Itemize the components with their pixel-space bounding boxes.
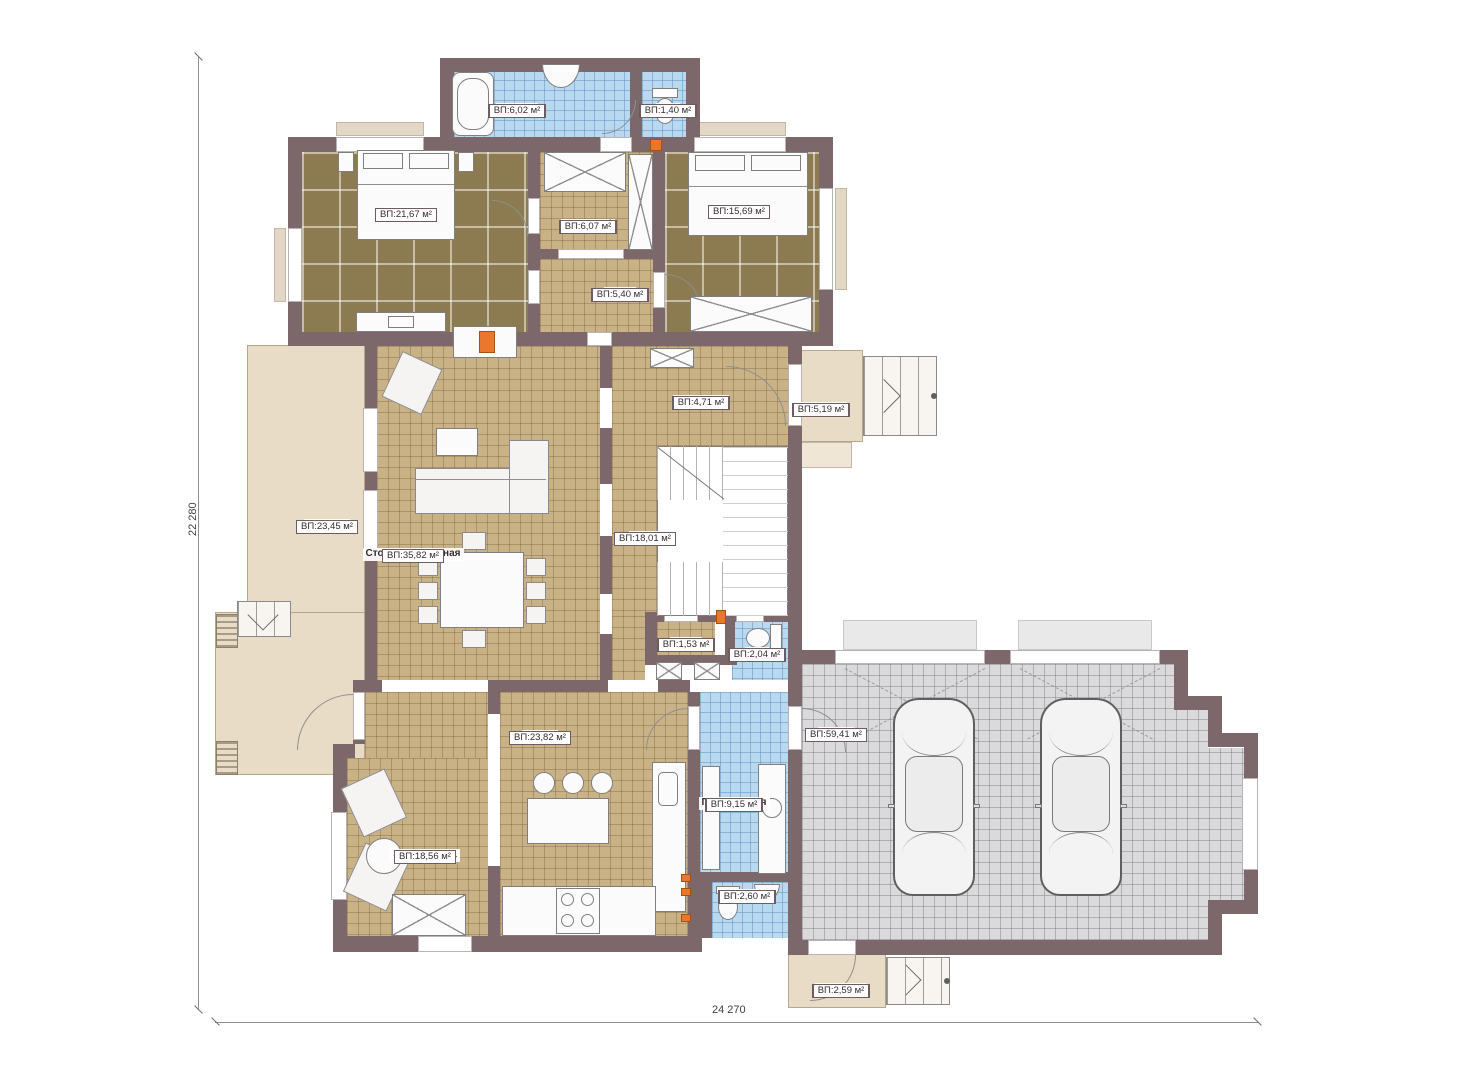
chair-symbol (526, 582, 546, 600)
room-area: ВП:5,19 м² (793, 403, 850, 417)
toilet-bowl (746, 628, 770, 648)
room-area: ВП:21,67 м² (375, 208, 437, 222)
wall-segment (333, 936, 702, 952)
room-area: ВП:6,07 м² (560, 220, 617, 234)
wardrobe-symbol (656, 662, 682, 680)
window (1242, 778, 1258, 870)
window-sill (835, 188, 847, 290)
car-rear-window (1049, 832, 1113, 854)
terrace-floor (247, 345, 365, 615)
room-area: ВП:4,71 м² (673, 396, 730, 410)
wall-segment (365, 680, 382, 692)
terrace-pillar (216, 741, 238, 775)
garage-door-opening (835, 650, 985, 664)
lounge-corridor-floor (365, 692, 488, 758)
blanket-line (358, 184, 454, 185)
door-opening (653, 272, 665, 308)
room-area: ВП:59,41 м² (805, 728, 867, 742)
dimension-label-height: 22 280 (187, 502, 199, 536)
stair-landing (723, 446, 788, 616)
room-area: ВП:2,60 м² (719, 890, 776, 904)
wardrobe-symbol (392, 894, 466, 936)
bar-stool (533, 772, 555, 794)
burner (561, 914, 574, 927)
dimension-label-width: 24 270 (712, 1004, 746, 1016)
door-opening (587, 332, 612, 346)
room-area: ВП:9,15 м² (706, 798, 763, 812)
nightstand (458, 152, 474, 172)
burner (581, 893, 594, 906)
chair-symbol (418, 606, 438, 624)
wall-segment (658, 680, 690, 692)
car-windshield (902, 732, 966, 756)
door-opening (788, 706, 802, 750)
window-sill (336, 122, 424, 136)
bathtub-inner (457, 78, 489, 130)
car-roof (905, 756, 963, 832)
room-area: ВП:1,53 м² (658, 638, 715, 652)
dresser-handle (388, 316, 414, 328)
chair-symbol (462, 532, 486, 550)
steps-arrow-dot (931, 393, 937, 399)
laundry-counter (758, 764, 786, 874)
window (288, 228, 302, 302)
garage-door-opening (1010, 650, 1160, 664)
wall-segment (645, 618, 657, 655)
pillow (363, 153, 403, 169)
burner (561, 893, 574, 906)
wall-segment (488, 692, 500, 714)
wall-segment (600, 634, 612, 680)
wall-segment (488, 866, 500, 936)
room-area: ВП:5,40 м² (592, 288, 649, 302)
window (418, 936, 472, 952)
dimension-line-horizontal (215, 1022, 1258, 1023)
room-area: ВП:23,82 м² (509, 731, 571, 745)
room-area: ВП:35,82 м² (382, 549, 444, 563)
wall-segment (700, 872, 712, 938)
wall-segment (528, 152, 540, 332)
laundry-counter (702, 766, 720, 870)
bar-stool (562, 772, 584, 794)
wall-segment (600, 536, 612, 594)
door-opening (600, 137, 632, 152)
chair-symbol (526, 558, 546, 576)
window-sill (274, 228, 286, 302)
garage-apron (843, 620, 977, 650)
bar-stool (591, 772, 613, 794)
wardrobe-symbol (544, 152, 626, 192)
wall-segment (1174, 650, 1188, 710)
door-opening (808, 940, 856, 955)
wall-segment (600, 428, 612, 484)
wardrobe-symbol (628, 154, 653, 250)
door-opening (558, 249, 624, 259)
burner (581, 914, 594, 927)
sofa-back-line (416, 479, 546, 480)
room-area: ВП:6,02 м² (489, 104, 546, 118)
radiator-icon (681, 874, 691, 882)
car-mirror (888, 804, 895, 808)
radiator-icon (681, 888, 691, 896)
radiator-icon (716, 610, 726, 624)
car-rear-window (902, 832, 966, 854)
car-symbol (893, 698, 975, 896)
radiator-icon (681, 914, 691, 922)
wall-segment (1208, 696, 1222, 747)
car-mirror (1120, 804, 1127, 808)
chair-symbol (526, 606, 546, 624)
car-mirror (1035, 804, 1042, 808)
door-opening (528, 270, 540, 304)
car-mirror (973, 804, 980, 808)
window (694, 137, 786, 152)
chair-symbol (418, 582, 438, 600)
dining-table-symbol (440, 552, 524, 628)
window (363, 490, 378, 556)
window (363, 408, 378, 472)
garage-apron (1018, 620, 1152, 650)
wardrobe-symbol (690, 296, 812, 332)
wall-segment (288, 332, 833, 346)
coffee-table-symbol (436, 428, 478, 456)
chair-symbol (462, 630, 486, 648)
room-area: ВП:18,01 м² (614, 532, 676, 546)
wall-segment (600, 346, 612, 388)
pillow (695, 155, 745, 171)
toilet-tank (770, 624, 782, 650)
room-area: ВП:23,45 м² (296, 520, 358, 534)
room-area: ВП:15,69 м² (708, 205, 770, 219)
pillow (409, 153, 449, 169)
car-windshield (1049, 732, 1113, 756)
window-sill (694, 122, 786, 136)
pillow (751, 155, 801, 171)
wardrobe-symbol (650, 348, 694, 368)
blanket-line (689, 186, 807, 187)
wall-segment (488, 680, 608, 692)
kitchen-island-symbol (527, 798, 609, 844)
wall-segment (788, 618, 802, 952)
sofa-chaise-symbol (509, 440, 549, 514)
stair-flight (657, 562, 723, 616)
toilet-tank (652, 88, 678, 98)
wardrobe-symbol (694, 662, 720, 680)
room-area: ВП:2,04 м² (729, 648, 786, 662)
kitchen-sink (658, 772, 678, 806)
window (819, 188, 833, 290)
radiator-icon (650, 139, 662, 151)
fireplace-fire-icon (479, 331, 495, 353)
room-area: ВП:2,59 м² (813, 984, 870, 998)
wall-segment (686, 58, 700, 138)
nightstand (338, 152, 354, 172)
door-opening (528, 198, 540, 234)
door-opening (688, 706, 700, 750)
floor-plan-canvas: 22 280 24 270 (0, 0, 1474, 1080)
room-area: ВП:18,56 м² (394, 850, 456, 864)
hall-nook-floor (612, 616, 645, 680)
steps-arrow-dot (944, 978, 950, 984)
car-symbol (1040, 698, 1122, 896)
terrace-pillar (216, 614, 238, 648)
terrace-door-opening (353, 692, 365, 740)
car-roof (1052, 756, 1110, 832)
room-area: ВП:1,40 м² (640, 104, 697, 118)
